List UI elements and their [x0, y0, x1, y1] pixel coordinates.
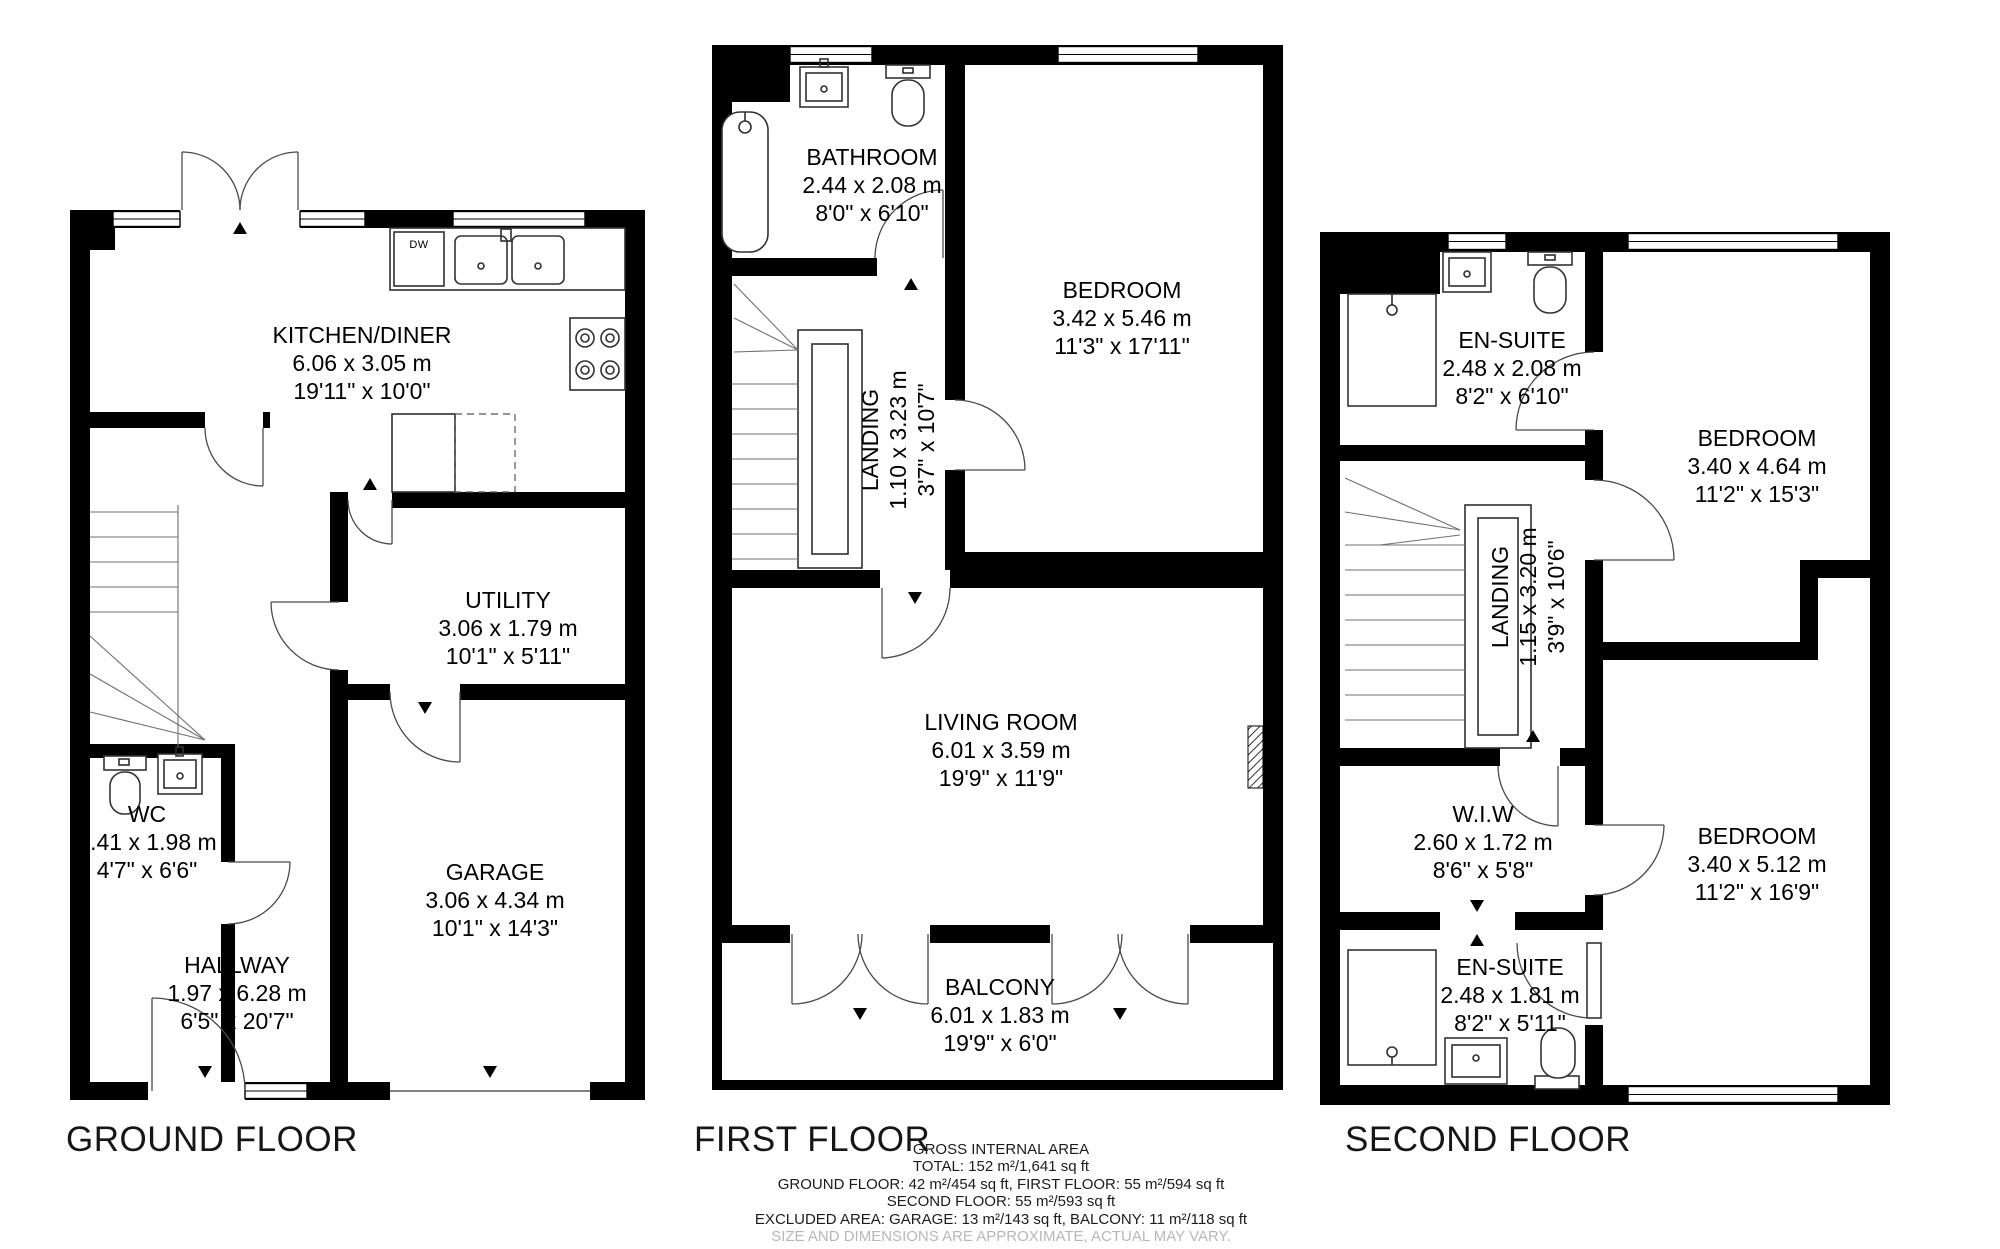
fireplace-icon: [1248, 726, 1263, 788]
footer-floors-line: GROUND FLOOR: 42 m²/454 sq ft, FIRST FLO…: [755, 1176, 1247, 1193]
toilet-icon: [1535, 1028, 1579, 1089]
room-dim-metric: 3.40 x 4.64 m: [1687, 452, 1826, 480]
room-dim-imperial: 3'9" x 10'6": [1542, 527, 1570, 666]
second-floor-plan: [1320, 232, 1890, 1105]
room-dim-imperial: 3'7" x 10'7": [912, 370, 940, 509]
room-dim-metric: 2.44 x 2.08 m: [802, 171, 941, 199]
shower-icon: [1348, 950, 1436, 1065]
footer-total: TOTAL: 152 m²/1,641 sq ft: [755, 1158, 1247, 1175]
room-dim-imperial: 6'5" x 20'7": [167, 1007, 306, 1035]
bathtub-icon: [722, 112, 768, 252]
room-name: EN-SUITE: [1440, 953, 1579, 981]
sink-icon: [158, 747, 202, 794]
room-label-garage: GARAGE 3.06 x 4.34 m 10'1" x 14'3": [425, 858, 564, 942]
room-dim-imperial: 11'2" x 15'3": [1687, 480, 1826, 508]
room-name: WC: [77, 800, 216, 828]
room-dim-imperial: 11'2" x 16'9": [1687, 878, 1826, 906]
footer-disclaimer: SIZE AND DIMENSIONS ARE APPROXIMATE, ACT…: [755, 1228, 1247, 1245]
room-label-wc: WC 1.41 x 1.98 m 4'7" x 6'6": [77, 800, 216, 884]
room-name: BALCONY: [930, 973, 1069, 1001]
room-dim-metric: 3.06 x 1.79 m: [438, 614, 577, 642]
room-dim-metric: 6.06 x 3.05 m: [273, 349, 452, 377]
room-label-utility: UTILITY 3.06 x 1.79 m 10'1" x 5'11": [438, 586, 577, 670]
island-counter: [392, 414, 515, 492]
room-dim-metric: 3.06 x 4.34 m: [425, 886, 564, 914]
room-dim-metric: 1.41 x 1.98 m: [77, 828, 216, 856]
room-label-landing-1: LANDING 1.10 x 3.23 m 3'7" x 10'7": [856, 370, 940, 509]
room-name: LANDING: [1486, 527, 1514, 666]
floorplan-drawing: [0, 0, 2000, 1249]
footer-second-line: SECOND FLOOR: 55 m²/593 sq ft: [755, 1193, 1247, 1210]
room-name: BEDROOM: [1052, 276, 1191, 304]
room-dim-imperial: 19'9" x 6'0": [930, 1029, 1069, 1057]
first-floor-plan: [712, 45, 1283, 1090]
room-label-en-suite-2: EN-SUITE 2.48 x 1.81 m 8'2" x 5'11": [1440, 953, 1579, 1037]
room-dim-imperial: 11'3" x 17'11": [1052, 332, 1191, 360]
room-dim-metric: 6.01 x 1.83 m: [930, 1001, 1069, 1029]
stairs: [732, 284, 862, 568]
room-label-balcony: BALCONY 6.01 x 1.83 m 19'9" x 6'0": [930, 973, 1069, 1057]
room-name: BEDROOM: [1687, 424, 1826, 452]
toilet-icon: [1528, 252, 1572, 313]
footer-heading: GROSS INTERNAL AREA: [755, 1141, 1247, 1158]
room-name: LIVING ROOM: [924, 708, 1077, 736]
room-name: UTILITY: [438, 586, 577, 614]
room-dim-imperial: 19'11" x 10'0": [273, 377, 452, 405]
room-dim-imperial: 10'1" x 5'11": [438, 642, 577, 670]
room-label-wiw: W.I.W 2.60 x 1.72 m 8'6" x 5'8": [1413, 800, 1552, 884]
stove-icon: [570, 318, 625, 390]
room-label-bedroom-2: BEDROOM 3.40 x 4.64 m 11'2" x 15'3": [1687, 424, 1826, 508]
second-floor-title: SECOND FLOOR: [1345, 1120, 1631, 1160]
room-dim-metric: 2.48 x 2.08 m: [1442, 354, 1581, 382]
toilet-icon: [886, 65, 930, 126]
room-dim-metric: 1.15 x 3.20 m: [1514, 527, 1542, 666]
room-dim-imperial: 10'1" x 14'3": [425, 914, 564, 942]
room-label-hallway: HALLWAY 1.97 x 6.28 m 6'5" x 20'7": [167, 951, 306, 1035]
room-dim-imperial: 19'9" x 11'9": [924, 764, 1077, 792]
room-label-en-suite-1: EN-SUITE 2.48 x 2.08 m 8'2" x 6'10": [1442, 326, 1581, 410]
sink-icon: [800, 59, 848, 107]
room-label-kitchen-diner: KITCHEN/DINER 6.06 x 3.05 m 19'11" x 10'…: [273, 321, 452, 405]
floorplan-page: KITCHEN/DINER 6.06 x 3.05 m 19'11" x 10'…: [0, 0, 2000, 1249]
room-dim-metric: 1.10 x 3.23 m: [884, 370, 912, 509]
sink-icon: [1443, 252, 1491, 292]
gross-internal-area-note: GROSS INTERNAL AREA TOTAL: 152 m²/1,641 …: [755, 1141, 1247, 1245]
room-dim-metric: 2.60 x 1.72 m: [1413, 828, 1552, 856]
dishwasher-label: DW: [409, 239, 428, 251]
sink-icon: [1445, 1038, 1507, 1084]
room-dim-metric: 1.97 x 6.28 m: [167, 979, 306, 1007]
room-name: KITCHEN/DINER: [273, 321, 452, 349]
room-dim-imperial: 8'6" x 5'8": [1413, 856, 1552, 884]
room-name: W.I.W: [1413, 800, 1552, 828]
french-door-arc: [182, 152, 298, 210]
stairs: [90, 505, 205, 748]
room-dim-metric: 2.48 x 1.81 m: [1440, 981, 1579, 1009]
room-label-bedroom-1: BEDROOM 3.42 x 5.46 m 11'3" x 17'11": [1052, 276, 1191, 360]
room-label-bedroom-3: BEDROOM 3.40 x 5.12 m 11'2" x 16'9": [1687, 822, 1826, 906]
room-dim-imperial: 8'2" x 6'10": [1442, 382, 1581, 410]
room-name: EN-SUITE: [1442, 326, 1581, 354]
room-dim-metric: 3.42 x 5.46 m: [1052, 304, 1191, 332]
room-dim-imperial: 4'7" x 6'6": [77, 856, 216, 884]
room-label-landing-2: LANDING 1.15 x 3.20 m 3'9" x 10'6": [1486, 527, 1570, 666]
ground-floor-title: GROUND FLOOR: [66, 1120, 358, 1160]
kitchen-sink-icon: [455, 229, 564, 284]
room-label-living-room: LIVING ROOM 6.01 x 3.59 m 19'9" x 11'9": [924, 708, 1077, 792]
room-name: GARAGE: [425, 858, 564, 886]
room-label-bathroom: BATHROOM 2.44 x 2.08 m 8'0" x 6'10": [802, 143, 941, 227]
room-dim-imperial: 8'0" x 6'10": [802, 199, 941, 227]
room-dim-imperial: 8'2" x 5'11": [1440, 1009, 1579, 1037]
room-dim-metric: 6.01 x 3.59 m: [924, 736, 1077, 764]
room-name: LANDING: [856, 370, 884, 509]
room-name: BEDROOM: [1687, 822, 1826, 850]
shower-icon: [1348, 294, 1436, 406]
room-name: BATHROOM: [802, 143, 941, 171]
footer-excluded-line: EXCLUDED AREA: GARAGE: 13 m²/143 sq ft, …: [755, 1211, 1247, 1228]
room-dim-metric: 3.40 x 5.12 m: [1687, 850, 1826, 878]
room-name: HALLWAY: [167, 951, 306, 979]
